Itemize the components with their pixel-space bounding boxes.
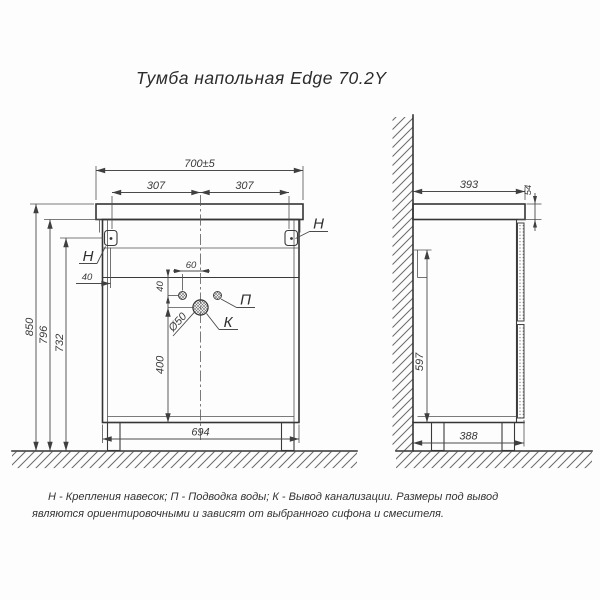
svg-text:Н: Н	[313, 216, 324, 233]
dim-height-total: 850	[24, 204, 94, 451]
label-bracket-left: Н	[79, 247, 106, 266]
side-door-front	[518, 325, 525, 419]
side-leg-front	[502, 423, 515, 451]
dim-height-to-bracket: 732	[54, 238, 103, 451]
side-floor	[396, 451, 592, 468]
legend-note: Н - Крепления навесок; П - Подводка воды…	[32, 489, 538, 522]
bracket-left	[105, 231, 118, 246]
dim-supply-drop: 40	[155, 270, 179, 308]
dim-supply-offset: 60	[173, 260, 210, 291]
drawing-title: Тумба напольная Edge 70.2Y	[136, 68, 387, 88]
svg-text:597: 597	[414, 352, 426, 371]
dim-depth: 393	[413, 179, 525, 200]
drawing-sheet: Тумба напольная Edge 70.2Y	[0, 0, 600, 600]
dim-front-height: 597	[414, 250, 432, 423]
svg-text:732: 732	[54, 334, 66, 352]
svg-text:60: 60	[186, 260, 197, 271]
svg-text:694: 694	[191, 427, 209, 439]
dim-overall-width: 700±5	[96, 158, 303, 200]
dim-base-width: 694	[103, 425, 300, 444]
svg-text:40: 40	[82, 272, 93, 283]
svg-text:54: 54	[523, 185, 534, 196]
svg-text:400: 400	[155, 355, 167, 374]
front-countertop	[96, 204, 303, 220]
dim-drain-diameter: Ø50	[164, 304, 195, 337]
drain-hole	[193, 300, 208, 315]
side-view: 393 54 597 388	[393, 115, 593, 468]
svg-text:П: П	[240, 292, 251, 309]
svg-text:307: 307	[235, 180, 254, 192]
svg-text:850: 850	[24, 317, 36, 336]
front-leg-right	[282, 423, 295, 451]
svg-text:393: 393	[460, 179, 479, 191]
front-leg-left	[108, 423, 121, 451]
front-view: 700±5 307 307 850 796 732	[12, 158, 357, 468]
label-water-supply: П	[221, 292, 255, 309]
label-drain: К	[207, 314, 239, 332]
svg-text:К: К	[224, 314, 234, 331]
svg-text:307: 307	[147, 180, 166, 192]
svg-text:Ø50: Ø50	[166, 310, 190, 335]
side-drawer-front	[518, 223, 525, 321]
water-supply-hole-left	[179, 292, 187, 300]
wall	[393, 115, 414, 451]
dim-base-depth: 388	[413, 420, 524, 447]
front-floor	[12, 451, 357, 468]
svg-text:700±5: 700±5	[184, 158, 215, 170]
side-countertop	[413, 204, 525, 220]
svg-text:Н: Н	[83, 248, 94, 265]
water-supply-hole-right	[214, 292, 222, 300]
svg-text:40: 40	[155, 281, 166, 292]
svg-text:388: 388	[459, 431, 478, 443]
side-leg-back	[432, 423, 445, 451]
svg-text:796: 796	[38, 325, 50, 344]
